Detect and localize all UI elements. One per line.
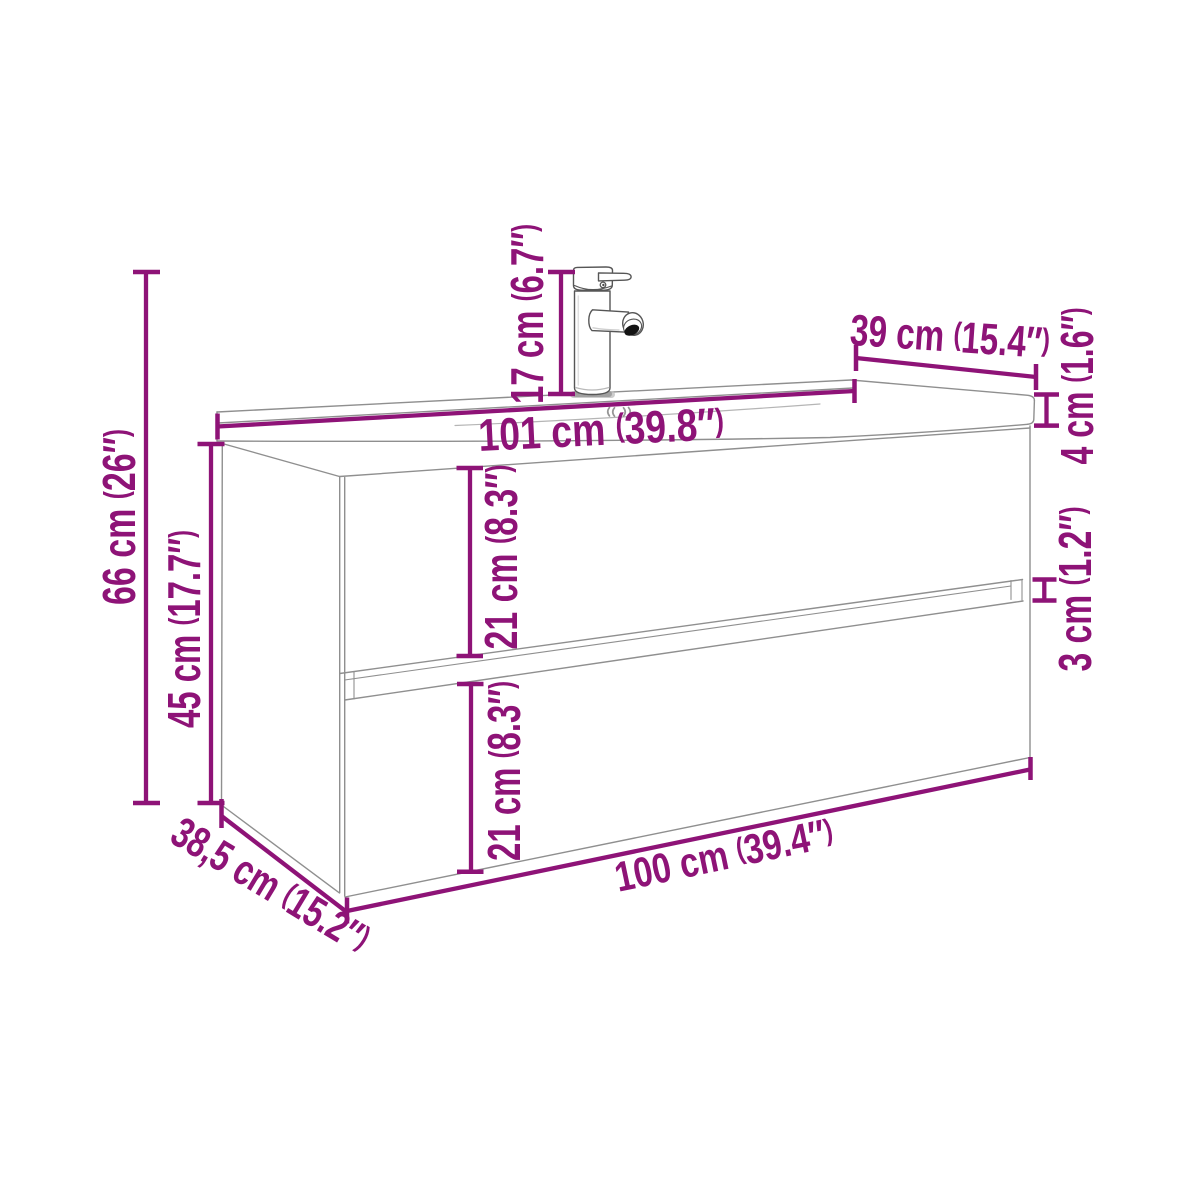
svg-text:3 cm (1.2″): 3 cm (1.2″) (1049, 507, 1101, 672)
svg-text:17 cm (6.7″): 17 cm (6.7″) (501, 224, 553, 404)
svg-text:66 cm (26″): 66 cm (26″) (93, 429, 145, 605)
svg-text:21 cm (8.3″): 21 cm (8.3″) (475, 465, 527, 650)
svg-text:45 cm (17.7″): 45 cm (17.7″) (158, 530, 210, 728)
svg-text:4 cm (1.6″): 4 cm (1.6″) (1051, 308, 1103, 465)
svg-text:21 cm (8.3″): 21 cm (8.3″) (478, 681, 530, 861)
